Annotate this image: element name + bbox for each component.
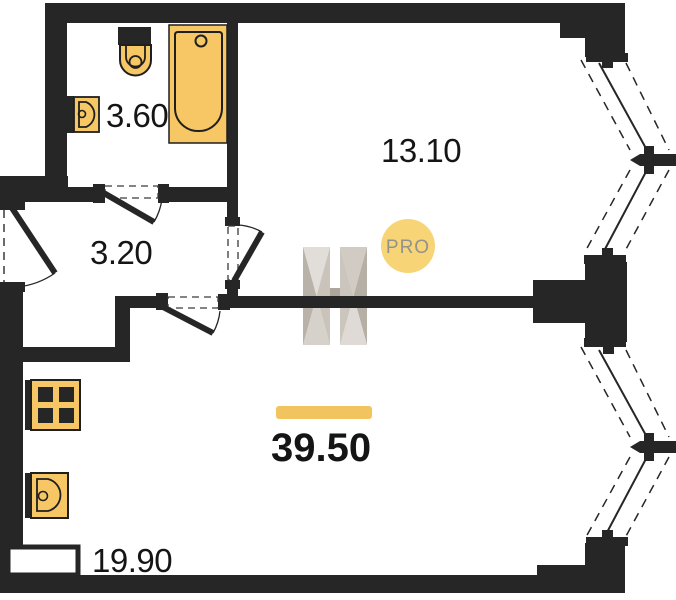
watermark-logo-icon: PRO bbox=[303, 219, 435, 345]
area-label-bathroom: 3.60 bbox=[106, 99, 168, 132]
bathroom-door bbox=[102, 186, 162, 222]
wall-niche bbox=[8, 547, 78, 575]
bay-window-bottom bbox=[581, 347, 676, 538]
bedroom-door bbox=[228, 225, 262, 281]
area-label-hallway: 3.20 bbox=[90, 236, 152, 269]
walls bbox=[0, 3, 628, 593]
entrance-door bbox=[4, 208, 55, 287]
floor-plan: PRO bbox=[0, 0, 676, 600]
area-label-total: 39.50 bbox=[271, 428, 371, 468]
floor-plan-drawing: PRO bbox=[0, 0, 676, 600]
stove-icon bbox=[25, 380, 80, 430]
bay-window-top bbox=[581, 60, 676, 251]
total-area-accent-bar bbox=[276, 406, 372, 419]
kitchen-sink-icon bbox=[25, 473, 68, 518]
toilet-icon bbox=[118, 27, 151, 75]
bathtub-icon bbox=[169, 25, 227, 143]
living-room-door bbox=[163, 297, 220, 333]
area-label-living-room: 19.90 bbox=[92, 544, 172, 577]
area-label-bedroom: 13.10 bbox=[381, 134, 461, 167]
watermark-pro-label: PRO bbox=[386, 237, 430, 258]
bathroom-sink-icon bbox=[65, 96, 99, 133]
